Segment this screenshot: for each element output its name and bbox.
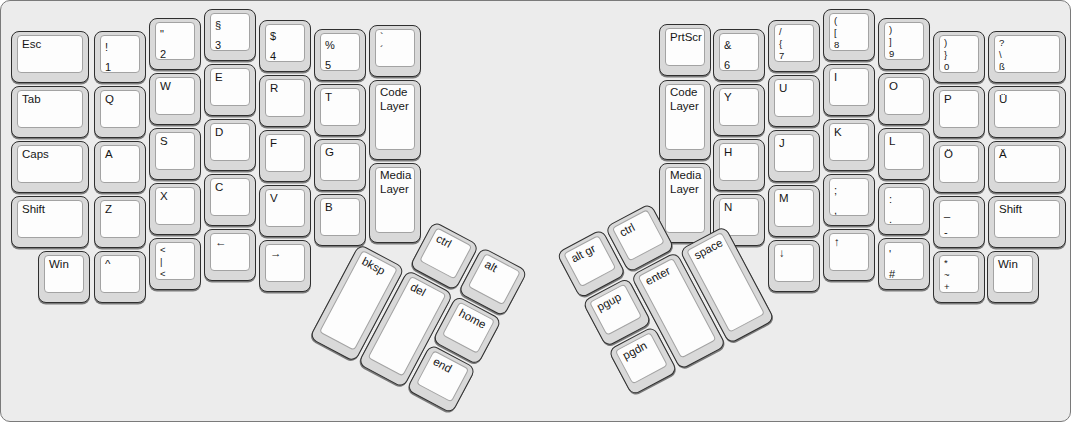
keycap-top: D (210, 123, 250, 161)
key-legend-line: 7 (779, 50, 811, 62)
key-d[interactable]: D (204, 119, 256, 171)
key-legend-line: ↓ (779, 246, 811, 260)
key-3-paragraph[interactable]: §3 (204, 9, 256, 61)
key-legend: W (160, 79, 192, 93)
keycap-top: O (884, 77, 924, 115)
key-legend-line: C (215, 180, 247, 194)
key-legend-line: - (944, 222, 976, 238)
key-legend: I (834, 70, 866, 84)
key-p[interactable]: P (933, 86, 985, 138)
key-legend: PrtScr (670, 30, 702, 44)
key-legend-line: home (457, 306, 492, 333)
key-legend: :. (889, 189, 921, 225)
key-media-layer-left[interactable]: MediaLayer (369, 163, 421, 243)
key-legend-line: → (270, 246, 302, 260)
key-legend-line: 4 (270, 46, 302, 62)
key-a-umlaut[interactable]: Ä (988, 141, 1066, 193)
key-legend: A (105, 147, 137, 161)
key-z[interactable]: Z (94, 196, 146, 248)
keycap-top: Ö (939, 145, 979, 183)
key-legend: U (779, 81, 811, 95)
keycap-top: T (320, 88, 360, 126)
key-legend-line: V (270, 191, 302, 205)
keycap-top: Ä (994, 145, 1060, 183)
key-legend: CodeLayer (670, 86, 702, 113)
key-legend: ↓ (779, 246, 811, 260)
key-legend: ?\ß (999, 37, 1057, 73)
key-legend: <|< (160, 244, 192, 280)
keycap-top: H (719, 143, 759, 181)
key-caps[interactable]: Caps (11, 141, 89, 193)
keycap-top: alt gr (563, 235, 616, 287)
keycap-top: ?\ß (994, 35, 1060, 73)
key-legend: N (724, 200, 756, 214)
key-m[interactable]: M (768, 185, 820, 237)
key-legend-line: : (889, 189, 921, 209)
keycap-top: Win (44, 255, 84, 293)
key-legend-line: Code (380, 86, 412, 100)
keycap-top: ^ (100, 255, 140, 293)
key-legend: space (691, 235, 726, 262)
keycap-top: I (829, 68, 869, 106)
keycap-top: CodeLayer (375, 84, 415, 150)
key-legend-line: * (944, 257, 976, 269)
key-i[interactable]: I (823, 64, 875, 116)
keycap-top: F (265, 134, 305, 172)
keycap-top: PrtScr (665, 28, 705, 66)
key-legend-line: alt gr (569, 238, 604, 265)
key-legend-line: end (431, 354, 466, 381)
key-g[interactable]: G (314, 139, 366, 191)
key-legend-line: 1 (105, 57, 137, 73)
key-legend-line: Layer (380, 100, 412, 114)
key-prtscr[interactable]: PrtScr (659, 24, 711, 76)
key-legend: /{7 (779, 26, 811, 62)
keycap-top: Tab (17, 90, 83, 128)
keycap-top: B (320, 198, 360, 236)
key-legend: C (215, 180, 247, 194)
keycap-top: %5 (320, 33, 360, 71)
key-legend: enter (643, 261, 678, 288)
key-legend: )}0 (944, 37, 976, 73)
keycap-top: CodeLayer (665, 84, 705, 150)
key-legend-line: ) (889, 24, 921, 36)
keycap-top: ↑ (829, 233, 869, 271)
key-semicolon-comma[interactable]: ;, (823, 174, 875, 226)
key-legend-line: ? (999, 37, 1057, 49)
key-media-layer-right[interactable]: MediaLayer (659, 163, 711, 243)
key-o[interactable]: O (878, 73, 930, 125)
key-a[interactable]: A (94, 141, 146, 193)
key-angle-pipe[interactable]: <|< (149, 238, 201, 290)
key-legend: Y (724, 90, 756, 104)
keycap-top: !1 (100, 35, 140, 73)
key-legend-line: Media (380, 169, 412, 183)
key-legend-line: O (889, 79, 921, 93)
key-r[interactable]: R (259, 75, 311, 127)
key-legend: Q (105, 92, 137, 106)
key-legend: ↑ (834, 235, 866, 249)
keycap-top: )}0 (939, 35, 979, 73)
key-arrow-up[interactable]: ↑ (823, 229, 875, 281)
key-legend-line: B (325, 200, 357, 214)
keycap-top: Shift (994, 200, 1060, 238)
key-y[interactable]: Y (713, 84, 765, 136)
key-o-umlaut[interactable]: Ö (933, 141, 985, 193)
key-legend-line: 3 (215, 35, 247, 51)
key-legend-line: | (160, 256, 192, 268)
key-legend-line: Layer (670, 100, 702, 114)
key-legend: Win (49, 257, 81, 271)
key-win-right[interactable]: Win (987, 251, 1039, 303)
key-legend: )]9 (889, 24, 921, 60)
key-legend: → (270, 246, 302, 260)
keycap-top: ctrl (419, 227, 472, 279)
key-l[interactable]: L (878, 128, 930, 180)
keycap-top: S (155, 132, 195, 170)
key-legend-line: R (270, 81, 302, 95)
key-c[interactable]: C (204, 174, 256, 226)
key-legend-line: Media (670, 169, 702, 183)
key-legend-line: X (160, 189, 192, 203)
key-legend-line: Layer (670, 183, 702, 197)
key-legend-line: alt (482, 257, 517, 284)
key-legend-line: ^ (105, 257, 137, 271)
keycap-top: end (416, 350, 469, 402)
key-legend-line: ` (380, 31, 412, 44)
key-legend: ;, (834, 180, 866, 216)
key-legend: bksp (360, 254, 395, 281)
key-u-umlaut[interactable]: Ü (988, 86, 1066, 138)
keycap-top: home (442, 302, 495, 354)
keycap-top: pgdn (615, 332, 668, 384)
key-legend: ← (215, 235, 247, 249)
key-legend-line: 8 (834, 39, 866, 51)
key-legend-line: ↑ (834, 235, 866, 249)
key-legend-line: " (160, 24, 192, 44)
key-legend-line: G (325, 145, 357, 159)
key-legend-line: N (724, 200, 756, 214)
keycap-top: M (774, 189, 814, 227)
key-h[interactable]: H (713, 139, 765, 191)
key-apostrophe-hash[interactable]: '# (878, 238, 930, 290)
key-legend: L (889, 134, 921, 148)
keycap-top: C (210, 178, 250, 216)
key-legend: *~+ (944, 257, 976, 293)
keycap-top: MediaLayer (665, 167, 705, 233)
key-caret[interactable]: ^ (94, 251, 146, 303)
key-legend-line: S (160, 134, 192, 148)
key-j[interactable]: J (768, 130, 820, 182)
key-k[interactable]: K (823, 119, 875, 171)
key-legend-line: Q (105, 92, 137, 106)
key-legend: &6 (724, 35, 756, 71)
keycap-top: Q (100, 90, 140, 128)
key-6-ampersand[interactable]: &6 (713, 29, 765, 81)
key-7-slash-brace[interactable]: /{7 (768, 20, 820, 72)
key-legend: alt gr (569, 238, 604, 265)
keycap-top: ([8 (829, 13, 869, 51)
keycap-top: R (265, 79, 305, 117)
key-v[interactable]: V (259, 185, 311, 237)
key-0-paren-brace[interactable]: )}0 (933, 31, 985, 83)
key-s[interactable]: S (149, 128, 201, 180)
keycap-top: &6 (719, 33, 759, 71)
key-legend-line: $ (270, 26, 302, 46)
key-u[interactable]: U (768, 75, 820, 127)
keycap-top: Ü (994, 90, 1060, 128)
keycap-top: X (155, 187, 195, 225)
key-eszett[interactable]: ?\ß (988, 31, 1066, 83)
key-legend: del (408, 280, 443, 307)
key-legend-line: { (779, 38, 811, 50)
keycap-top: ;, (829, 178, 869, 216)
keycap-top: W (155, 77, 195, 115)
key-legend-line: ' (889, 244, 921, 264)
key-legend: !1 (105, 37, 137, 73)
key-legend: G (325, 145, 357, 159)
keycap-top: U (774, 79, 814, 117)
key-legend-line: Ö (944, 147, 976, 161)
key-legend-line: ( (834, 15, 866, 27)
key-legend: %5 (325, 35, 357, 71)
keycap-top: ctrl (612, 209, 665, 261)
key-2-quote[interactable]: "2 (149, 18, 201, 70)
keycap-top: Shift (17, 200, 83, 238)
key-legend: H (724, 145, 756, 159)
keycap-top: A (100, 145, 140, 183)
key-legend: home (457, 306, 492, 333)
key-legend-line: enter (643, 261, 678, 288)
key-legend: T (325, 90, 357, 104)
key-legend-line: ß (999, 61, 1057, 73)
key-legend-line: ~ (944, 269, 976, 281)
key-legend-line: _ (944, 202, 976, 222)
key-legend: B (325, 200, 357, 214)
key-legend-line: bksp (360, 254, 395, 281)
key-legend-line: J (779, 136, 811, 150)
keycap-top: ← (210, 233, 250, 271)
key-legend: ([8 (834, 15, 866, 51)
keycap-top: Win (993, 255, 1033, 293)
key-legend: Caps (22, 147, 80, 161)
key-legend-line: D (215, 125, 247, 139)
key-legend: `´ (380, 31, 412, 57)
key-legend-line: & (724, 35, 756, 55)
key-arrow-left[interactable]: ← (204, 229, 256, 281)
key-legend: Tab (22, 92, 80, 106)
keycap-top: ↓ (774, 244, 814, 282)
key-legend: alt (482, 257, 517, 284)
keycap-top: K (829, 123, 869, 161)
key-legend-line: del (408, 280, 443, 307)
key-legend-line: pgup (594, 287, 629, 314)
key-legend: Win (998, 257, 1030, 271)
key-legend-line: § (215, 15, 247, 35)
key-legend: O (889, 79, 921, 93)
key-legend-line: W (160, 79, 192, 93)
keycap-top: → (265, 244, 305, 282)
key-legend-line: 2 (160, 44, 192, 60)
key-legend: D (215, 125, 247, 139)
keycap-top: P (939, 90, 979, 128)
keycap-top: '# (884, 242, 924, 280)
key-legend-line: + (944, 281, 976, 293)
key-legend-line: K (834, 125, 866, 139)
key-win-left[interactable]: Win (38, 251, 90, 303)
key-legend-line: < (160, 268, 192, 280)
key-legend-line: ← (215, 235, 247, 249)
key-legend-line: P (944, 92, 976, 106)
key-legend-line: ] (889, 36, 921, 48)
key-legend: V (270, 191, 302, 205)
key-legend-line: ´ (380, 44, 412, 57)
key-legend-line: 9 (889, 48, 921, 60)
key-legend: F (270, 136, 302, 150)
key-esc[interactable]: Esc (11, 31, 89, 83)
key-legend: ctrl (434, 231, 469, 258)
keycap-top: G (320, 143, 360, 181)
key-legend: _- (944, 202, 976, 238)
key-legend-line: U (779, 81, 811, 95)
key-legend: R (270, 81, 302, 95)
key-shift-right[interactable]: Shift (988, 196, 1066, 248)
key-legend: K (834, 125, 866, 139)
key-legend: S (160, 134, 192, 148)
keycap-top: /{7 (774, 24, 814, 62)
key-legend: §3 (215, 15, 247, 51)
keycap-top: Esc (17, 35, 83, 73)
key-legend-line: T (325, 90, 357, 104)
key-legend: Ö (944, 147, 976, 161)
key-8-paren-bracket[interactable]: ([8 (823, 9, 875, 61)
key-4-dollar[interactable]: $4 (259, 20, 311, 72)
key-legend-line: 6 (724, 55, 756, 71)
key-asterisk-tilde-plus[interactable]: *~+ (933, 251, 985, 303)
key-legend-line: space (691, 235, 726, 262)
key-f[interactable]: F (259, 130, 311, 182)
key-code-layer-right[interactable]: CodeLayer (659, 80, 711, 160)
keycap-top: )]9 (884, 22, 924, 60)
key-t[interactable]: T (314, 84, 366, 136)
key-legend-line: L (889, 134, 921, 148)
key-legend-line: # (889, 264, 921, 280)
key-legend-line: ctrl (617, 212, 652, 239)
key-e[interactable]: E (204, 64, 256, 116)
key-q[interactable]: Q (94, 86, 146, 138)
key-legend: MediaLayer (670, 169, 702, 196)
key-legend-line: pgdn (620, 335, 655, 362)
key-legend-line: Win (49, 257, 81, 271)
key-legend: Ü (999, 92, 1057, 106)
key-legend-line: Code (670, 86, 702, 100)
key-tab[interactable]: Tab (11, 86, 89, 138)
key-colon-period[interactable]: :. (878, 183, 930, 235)
keycap-top: Caps (17, 145, 83, 183)
key-legend: P (944, 92, 976, 106)
key-legend: Shift (22, 202, 80, 216)
keycap-top: J (774, 134, 814, 172)
key-b[interactable]: B (314, 194, 366, 246)
key-legend-line: Caps (22, 147, 80, 161)
key-legend-line: , (834, 200, 866, 216)
keycap-top: E (210, 68, 250, 106)
key-legend-line: Y (724, 90, 756, 104)
key-1-exclam[interactable]: !1 (94, 31, 146, 83)
key-legend-line: . (889, 209, 921, 225)
key-arrow-right[interactable]: → (259, 240, 311, 292)
key-5-percent[interactable]: %5 (314, 29, 366, 81)
key-legend: end (431, 354, 466, 381)
key-grave-acute[interactable]: `´ (369, 25, 421, 77)
key-legend: Z (105, 202, 137, 216)
key-legend: M (779, 191, 811, 205)
key-legend-line: A (105, 147, 137, 161)
key-code-layer-left[interactable]: CodeLayer (369, 80, 421, 160)
keycap-top: alt (468, 253, 521, 305)
key-legend-line: Shift (22, 202, 80, 216)
key-legend-line: Esc (22, 37, 80, 51)
key-legend: MediaLayer (380, 169, 412, 196)
keycap-top: "2 (155, 22, 195, 60)
key-legend-line: Ü (999, 92, 1057, 106)
key-legend-line: M (779, 191, 811, 205)
keycap-top: $4 (265, 24, 305, 62)
keycap-top: _- (939, 200, 979, 238)
keycap-top: Y (719, 88, 759, 126)
key-legend-line: % (325, 35, 357, 55)
key-legend-line: Win (998, 257, 1030, 271)
keycap-top: :. (884, 187, 924, 225)
key-legend-line: ! (105, 37, 137, 57)
keycap-top: *~+ (939, 255, 979, 293)
key-legend-line: PrtScr (670, 30, 702, 44)
key-legend-line: Shift (999, 202, 1057, 216)
key-legend-line: / (779, 26, 811, 38)
keycap-top: V (265, 189, 305, 227)
key-9-paren-bracket[interactable]: )]9 (878, 18, 930, 70)
key-legend: CodeLayer (380, 86, 412, 113)
key-legend: X (160, 189, 192, 203)
key-underscore-dash[interactable]: _- (933, 196, 985, 248)
key-arrow-down[interactable]: ↓ (768, 240, 820, 292)
keycap-top: `´ (375, 29, 415, 67)
key-x[interactable]: X (149, 183, 201, 235)
key-legend: J (779, 136, 811, 150)
key-legend-line: Layer (380, 183, 412, 197)
key-legend: ^ (105, 257, 137, 271)
key-legend-line: ; (834, 180, 866, 200)
key-legend-line: \ (999, 49, 1057, 61)
key-legend-line: E (215, 70, 247, 84)
key-legend: pgup (594, 287, 629, 314)
key-shift-left[interactable]: Shift (11, 196, 89, 248)
key-legend: pgdn (620, 335, 655, 362)
keycap-top: L (884, 132, 924, 170)
key-legend-line: ctrl (434, 231, 469, 258)
key-legend: '# (889, 244, 921, 280)
key-legend-line: < (160, 244, 192, 256)
key-legend: Ä (999, 147, 1057, 161)
key-w[interactable]: W (149, 73, 201, 125)
key-legend: $4 (270, 26, 302, 62)
key-legend-line: H (724, 145, 756, 159)
keycap-top: Z (100, 200, 140, 238)
key-legend: "2 (160, 24, 192, 60)
key-legend-line: F (270, 136, 302, 150)
key-legend-line: ) (944, 37, 976, 49)
key-legend-line: 5 (325, 55, 357, 71)
